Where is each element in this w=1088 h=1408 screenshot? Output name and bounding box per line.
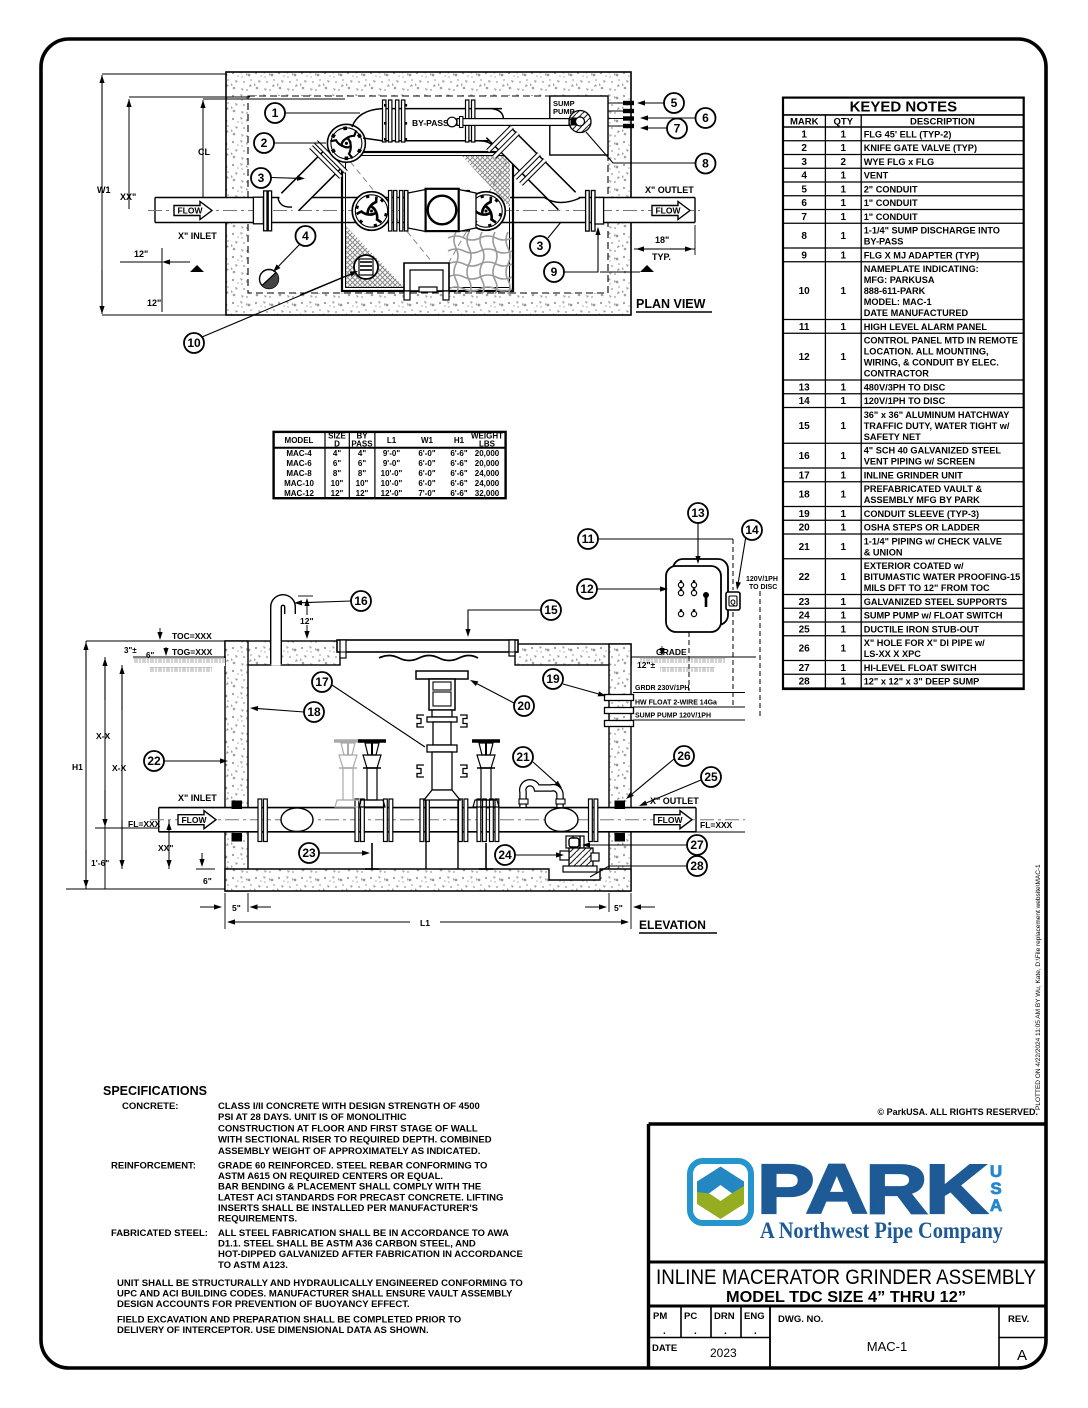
svg-text:20: 20 bbox=[799, 523, 811, 534]
svg-text:17: 17 bbox=[315, 675, 329, 689]
svg-text:10: 10 bbox=[799, 286, 811, 297]
svg-text:DELIVERY OF INTERCEPTOR. USE: DELIVERY OF INTERCEPTOR. USE DIMENSIONAL… bbox=[117, 1325, 429, 1336]
svg-text:8: 8 bbox=[801, 231, 807, 242]
svg-text:18: 18 bbox=[799, 490, 811, 501]
svg-text:X" INLET: X" INLET bbox=[178, 231, 217, 241]
svg-text:D1.1. STEEL SHALL BE ASTM A36: D1.1. STEEL SHALL BE ASTM A36 CARBON STE… bbox=[218, 1239, 476, 1250]
svg-text:27: 27 bbox=[690, 838, 704, 852]
svg-text:16: 16 bbox=[354, 594, 368, 608]
svg-text:MODEL: MODEL bbox=[285, 436, 314, 445]
svg-text:TOC=XXX: TOC=XXX bbox=[172, 631, 212, 641]
svg-text:1: 1 bbox=[841, 509, 847, 520]
svg-text:DWG. NO.: DWG. NO. bbox=[778, 1314, 823, 1325]
svg-text:X" OUTLET: X" OUTLET bbox=[650, 796, 699, 806]
svg-text:ENG: ENG bbox=[744, 1311, 765, 1322]
svg-text:23: 23 bbox=[799, 597, 811, 608]
svg-text:PARK: PARK bbox=[757, 1150, 987, 1228]
svg-text:DUCTILE IRON STUB-OUT: DUCTILE IRON STUB-OUT bbox=[864, 624, 980, 634]
svg-text:MAC-12: MAC-12 bbox=[284, 489, 314, 498]
svg-text:FIELD EXCAVATION AND PREPARATI: FIELD EXCAVATION AND PREPARATION SHALL B… bbox=[117, 1315, 461, 1326]
svg-text:12": 12" bbox=[356, 489, 369, 498]
svg-text:11: 11 bbox=[799, 322, 810, 333]
svg-text:22: 22 bbox=[147, 754, 161, 768]
svg-text:120V/1PH: 120V/1PH bbox=[746, 576, 778, 583]
svg-text:XX": XX" bbox=[120, 192, 136, 202]
svg-text:TO DISC: TO DISC bbox=[749, 584, 777, 591]
svg-text:PLAN VIEW: PLAN VIEW bbox=[636, 297, 706, 311]
svg-text:1'-6": 1'-6" bbox=[91, 858, 109, 868]
svg-text:SPECIFICATIONS: SPECIFICATIONS bbox=[103, 1084, 207, 1098]
svg-text:EXTERIOR COATED w/: EXTERIOR COATED w/ bbox=[864, 561, 964, 571]
svg-text:X" OUTLET: X" OUTLET bbox=[645, 185, 694, 195]
svg-text:L1: L1 bbox=[387, 436, 397, 445]
svg-text:1-1/4" PIPING w/ CHECK VALVE: 1-1/4" PIPING w/ CHECK VALVE bbox=[864, 536, 1002, 546]
svg-text:& UNION: & UNION bbox=[864, 547, 903, 557]
svg-text:REV.: REV. bbox=[1008, 1314, 1029, 1325]
svg-text:GRDR 230V/1PH: GRDR 230V/1PH bbox=[635, 685, 689, 692]
svg-text:1: 1 bbox=[841, 523, 847, 534]
svg-text:DESCRIPTION: DESCRIPTION bbox=[910, 117, 975, 128]
svg-text:14: 14 bbox=[745, 523, 759, 537]
svg-text:10": 10" bbox=[331, 479, 344, 488]
svg-text:KEYED NOTES: KEYED NOTES bbox=[850, 99, 958, 116]
svg-text:D: D bbox=[334, 440, 340, 449]
svg-text:WIRING, & CONDUIT BY ELEC.: WIRING, & CONDUIT BY ELEC. bbox=[864, 358, 999, 368]
svg-text:GRADE 60 REINFORCED. STEEL RE: GRADE 60 REINFORCED. STEEL REBAR CONFORM… bbox=[218, 1161, 487, 1172]
svg-text:1: 1 bbox=[841, 542, 847, 553]
svg-text:24,000: 24,000 bbox=[475, 469, 500, 478]
svg-text:UPC AND ACI BUILDING CODES. M: UPC AND ACI BUILDING CODES. MANUFACTURER… bbox=[117, 1289, 513, 1300]
svg-text:6'-6": 6'-6" bbox=[450, 469, 467, 478]
svg-text:.: . bbox=[663, 1326, 666, 1337]
svg-text:5": 5" bbox=[614, 903, 623, 913]
svg-text:6": 6" bbox=[333, 459, 341, 468]
svg-text:ASSEMBLY WEIGHT OF APPROXIMATE: ASSEMBLY WEIGHT OF APPROXIMATELY AS INDI… bbox=[218, 1146, 480, 1157]
svg-text:25: 25 bbox=[799, 624, 811, 635]
svg-text:2: 2 bbox=[801, 143, 807, 154]
svg-text:.: . bbox=[724, 1326, 727, 1337]
svg-text:7'-0": 7'-0" bbox=[418, 489, 435, 498]
svg-text:14: 14 bbox=[799, 396, 811, 407]
svg-text:1: 1 bbox=[272, 106, 279, 120]
svg-text:MAC-1: MAC-1 bbox=[867, 1339, 907, 1354]
svg-text:5": 5" bbox=[232, 903, 241, 913]
svg-text:X-X: X-X bbox=[112, 763, 127, 773]
svg-text:MARK: MARK bbox=[790, 117, 819, 128]
svg-text:FL=XXX: FL=XXX bbox=[700, 820, 733, 830]
svg-text:6'-0": 6'-0" bbox=[418, 479, 435, 488]
svg-text:17: 17 bbox=[799, 470, 811, 481]
svg-text:1: 1 bbox=[841, 212, 847, 223]
svg-text:888-611-PARK: 888-611-PARK bbox=[864, 286, 926, 296]
svg-text:SUMP PUMP w/ FLOAT SWITCH: SUMP PUMP w/ FLOAT SWITCH bbox=[864, 611, 1003, 621]
svg-text:WITH SECTIONAL RISER TO REQUIR: WITH SECTIONAL RISER TO REQUIRED DEPTH. … bbox=[218, 1135, 492, 1146]
svg-text:MFG: PARKUSA: MFG: PARKUSA bbox=[864, 275, 935, 285]
svg-text:CONTRACTOR: CONTRACTOR bbox=[864, 369, 930, 379]
svg-text:FLOW: FLOW bbox=[657, 815, 683, 825]
svg-text:11: 11 bbox=[582, 532, 595, 546]
svg-text:4": 4" bbox=[358, 449, 366, 458]
svg-text:1: 1 bbox=[841, 597, 847, 608]
svg-text:X" HOLE FOR X" DI PIPE w/: X" HOLE FOR X" DI PIPE w/ bbox=[864, 638, 985, 648]
svg-text:12: 12 bbox=[580, 582, 594, 596]
svg-text:6: 6 bbox=[702, 111, 709, 125]
svg-text:1: 1 bbox=[841, 198, 847, 209]
svg-text:1: 1 bbox=[801, 129, 807, 140]
svg-text:W1: W1 bbox=[97, 185, 111, 195]
svg-text:CONSTRUCTION AT FLOOR AND FIRS: CONSTRUCTION AT FLOOR AND FIRST STAGE OF… bbox=[218, 1123, 478, 1134]
svg-text:25: 25 bbox=[704, 770, 718, 784]
svg-text:L1: L1 bbox=[420, 918, 430, 928]
svg-text:CONDUIT SLEEVE (TYP-3): CONDUIT SLEEVE (TYP-3) bbox=[864, 509, 979, 519]
svg-text:8": 8" bbox=[358, 469, 366, 478]
svg-text:3"±: 3"± bbox=[124, 646, 137, 655]
svg-text:LOCATION. ALL MOUNTING,: LOCATION. ALL MOUNTING, bbox=[864, 347, 989, 357]
svg-text:PM: PM bbox=[653, 1311, 667, 1322]
svg-text:REQUIREMENTS.: REQUIREMENTS. bbox=[218, 1214, 297, 1225]
svg-text:6'-0": 6'-0" bbox=[418, 459, 435, 468]
svg-text:6'-6": 6'-6" bbox=[450, 449, 467, 458]
svg-text:24: 24 bbox=[498, 848, 512, 862]
svg-text:FLOW: FLOW bbox=[181, 815, 207, 825]
svg-text:MAC-8: MAC-8 bbox=[286, 469, 312, 478]
svg-text:HOT-DIPPED GALVANIZED AFTER FA: HOT-DIPPED GALVANIZED AFTER FABRICATION … bbox=[218, 1249, 523, 1260]
svg-text:ALL STEEL FABRICATION SHALL BE: ALL STEEL FABRICATION SHALL BE IN ACCORD… bbox=[218, 1228, 509, 1239]
svg-text:9'-0": 9'-0" bbox=[383, 459, 400, 468]
svg-text:DATE: DATE bbox=[652, 1343, 677, 1354]
svg-text:19: 19 bbox=[546, 672, 560, 686]
svg-text:W1: W1 bbox=[421, 436, 434, 445]
svg-text:BAR BENDING & PLACEMENT SHALL: BAR BENDING & PLACEMENT SHALL COMPLY WIT… bbox=[218, 1182, 481, 1193]
svg-text:9: 9 bbox=[801, 250, 807, 261]
svg-text:XX": XX" bbox=[158, 843, 173, 853]
svg-text:LBS: LBS bbox=[479, 440, 496, 449]
svg-text:1: 1 bbox=[841, 184, 847, 195]
svg-text:16: 16 bbox=[799, 451, 811, 462]
svg-text:10: 10 bbox=[187, 336, 201, 350]
svg-text:MAC-6: MAC-6 bbox=[286, 459, 312, 468]
svg-text:DRN: DRN bbox=[714, 1311, 735, 1322]
svg-text:HIGH LEVEL ALARM PANEL: HIGH LEVEL ALARM PANEL bbox=[864, 322, 988, 332]
svg-text:24,000: 24,000 bbox=[475, 479, 500, 488]
svg-text:VENT PIPING w/ SCREEN: VENT PIPING w/ SCREEN bbox=[864, 457, 976, 467]
svg-text:10'-0": 10'-0" bbox=[381, 479, 403, 488]
svg-text:9: 9 bbox=[551, 265, 558, 279]
svg-text:INLINE GRINDER UNIT: INLINE GRINDER UNIT bbox=[864, 470, 963, 480]
svg-text:2023: 2023 bbox=[710, 1346, 737, 1360]
svg-text:13: 13 bbox=[691, 506, 705, 520]
svg-text:LATEST ACI STANDARDS FOR PRECA: LATEST ACI STANDARDS FOR PRECAST CONCRET… bbox=[218, 1192, 503, 1203]
svg-text:1: 1 bbox=[841, 143, 847, 154]
svg-text:H1: H1 bbox=[72, 762, 83, 772]
svg-text:36" x 36" ALUMINUM HATCHWAY: 36" x 36" ALUMINUM HATCHWAY bbox=[864, 410, 1010, 420]
svg-text:8: 8 bbox=[702, 157, 709, 171]
svg-text:1: 1 bbox=[841, 451, 847, 462]
svg-text:21: 21 bbox=[516, 750, 530, 764]
svg-text:ASTM A615 ON REQUIRED CENTERS: ASTM A615 ON REQUIRED CENTERS OR EQUAL. bbox=[218, 1171, 443, 1182]
svg-text:32,000: 32,000 bbox=[475, 489, 500, 498]
svg-text:A Northwest Pipe Company: A Northwest Pipe Company bbox=[760, 1218, 1003, 1243]
svg-text:CLASS I/II CONCRETE WITH DESIG: CLASS I/II CONCRETE WITH DESIGN STRENGTH… bbox=[218, 1101, 480, 1112]
svg-text:1" CONDUIT: 1" CONDUIT bbox=[864, 212, 918, 222]
svg-text:FLOW: FLOW bbox=[177, 206, 203, 216]
svg-text:1: 1 bbox=[841, 352, 847, 363]
svg-text:FLG X MJ ADAPTER (TYP): FLG X MJ ADAPTER (TYP) bbox=[864, 250, 980, 260]
svg-text:HW FLOAT 2-WIRE 14Ga: HW FLOAT 2-WIRE 14Ga bbox=[635, 700, 717, 707]
svg-text:NAMEPLATE INDICATING:: NAMEPLATE INDICATING: bbox=[864, 264, 979, 274]
svg-text:24: 24 bbox=[799, 611, 811, 622]
svg-text:2: 2 bbox=[841, 157, 847, 168]
svg-text:20: 20 bbox=[517, 699, 531, 713]
svg-text:6'-0": 6'-0" bbox=[418, 449, 435, 458]
svg-text:WYE FLG x FLG: WYE FLG x FLG bbox=[864, 157, 934, 167]
svg-text:ELEVATION: ELEVATION bbox=[639, 918, 706, 932]
svg-text:1: 1 bbox=[841, 624, 847, 635]
svg-text:1: 1 bbox=[841, 490, 847, 501]
svg-text:VENT: VENT bbox=[864, 171, 889, 181]
svg-text:TO ASTM A123.: TO ASTM A123. bbox=[218, 1260, 288, 1271]
svg-text:27: 27 bbox=[799, 663, 811, 674]
svg-text:26: 26 bbox=[799, 644, 811, 655]
svg-text:6'-6": 6'-6" bbox=[450, 459, 467, 468]
svg-text:12": 12" bbox=[300, 616, 314, 626]
svg-text:FLG 45' ELL (TYP-2): FLG 45' ELL (TYP-2) bbox=[864, 129, 952, 139]
svg-text:DATE MANUFACTURED: DATE MANUFACTURED bbox=[864, 308, 969, 318]
svg-text:6": 6" bbox=[203, 876, 212, 886]
svg-text:X" INLET: X" INLET bbox=[178, 793, 217, 803]
svg-text:12": 12" bbox=[147, 298, 161, 308]
svg-text:1: 1 bbox=[841, 421, 847, 432]
svg-text:12" x 12" x 3" DEEP SUMP: 12" x 12" x 3" DEEP SUMP bbox=[864, 677, 980, 687]
svg-text:PASS: PASS bbox=[351, 440, 373, 449]
svg-text:A: A bbox=[990, 1196, 1002, 1215]
svg-text:1: 1 bbox=[841, 171, 847, 182]
svg-text:1: 1 bbox=[841, 677, 847, 688]
svg-text:BY-PASS: BY-PASS bbox=[412, 118, 449, 128]
svg-text:18: 18 bbox=[307, 705, 321, 719]
svg-text:19: 19 bbox=[799, 509, 811, 520]
svg-text:21: 21 bbox=[799, 542, 811, 553]
svg-text:12: 12 bbox=[799, 352, 811, 363]
svg-text:SAFETY NET: SAFETY NET bbox=[864, 432, 921, 442]
svg-text:INSERTS SHALL BE INSTALLED PER: INSERTS SHALL BE INSTALLED PER MANUFACTU… bbox=[218, 1203, 478, 1214]
svg-text:MAC-10: MAC-10 bbox=[284, 479, 314, 488]
svg-text:LS-XX X XPC: LS-XX X XPC bbox=[864, 649, 922, 659]
svg-text:7: 7 bbox=[674, 122, 681, 136]
svg-text:2: 2 bbox=[261, 136, 268, 150]
svg-text:10'-0": 10'-0" bbox=[381, 469, 403, 478]
svg-text:PREFABRICATED VAULT &: PREFABRICATED VAULT & bbox=[864, 484, 983, 494]
svg-text:CL: CL bbox=[198, 147, 210, 157]
svg-text:12"±: 12"± bbox=[637, 660, 655, 670]
svg-text:TRAFFIC DUTY, WATER TIGHT w/: TRAFFIC DUTY, WATER TIGHT w/ bbox=[864, 421, 1010, 431]
svg-text:PSI AT 28 DAYS. UNIT IS OF M: PSI AT 28 DAYS. UNIT IS OF MONOLITHIC bbox=[218, 1112, 407, 1123]
svg-text:1: 1 bbox=[841, 663, 847, 674]
svg-text:10": 10" bbox=[356, 479, 369, 488]
svg-text:3: 3 bbox=[801, 157, 807, 168]
svg-text:HI-LEVEL FLOAT SWITCH: HI-LEVEL FLOAT SWITCH bbox=[864, 663, 977, 673]
svg-text:6'-0": 6'-0" bbox=[418, 469, 435, 478]
svg-text:BITUMASTIC WATER PROOFING-15: BITUMASTIC WATER PROOFING-15 bbox=[864, 572, 1021, 582]
svg-text:12": 12" bbox=[331, 489, 344, 498]
svg-text:20,000: 20,000 bbox=[475, 459, 500, 468]
svg-text:PC: PC bbox=[684, 1311, 697, 1322]
svg-text:3: 3 bbox=[258, 171, 265, 185]
svg-text:UNIT SHALL BE STRUCTURALLY AND: UNIT SHALL BE STRUCTURALLY AND HYDRAULIC… bbox=[117, 1278, 523, 1289]
svg-text:GALVANIZED STEEL SUPPORTS: GALVANIZED STEEL SUPPORTS bbox=[864, 597, 1007, 607]
svg-text:1: 1 bbox=[841, 250, 847, 261]
svg-text:TOG=XXX: TOG=XXX bbox=[172, 647, 213, 657]
svg-text:MODEL: MAC-1: MODEL: MAC-1 bbox=[864, 297, 932, 307]
svg-text:15: 15 bbox=[799, 421, 811, 432]
svg-text:Q: Q bbox=[730, 600, 736, 607]
svg-text:FLOW: FLOW bbox=[655, 206, 681, 216]
svg-text:.: . bbox=[754, 1326, 757, 1337]
svg-text:TYP.: TYP. bbox=[652, 252, 671, 262]
svg-text:6": 6" bbox=[358, 459, 366, 468]
svg-text:KNIFE GATE VALVE (TYP): KNIFE GATE VALVE (TYP) bbox=[864, 143, 977, 153]
svg-text:4": 4" bbox=[333, 449, 341, 458]
svg-text:X-X: X-X bbox=[96, 731, 111, 741]
svg-text:26: 26 bbox=[677, 749, 691, 763]
svg-text:6: 6 bbox=[801, 198, 807, 209]
svg-text:1: 1 bbox=[841, 129, 847, 140]
svg-text:120V/1PH TO DISC: 120V/1PH TO DISC bbox=[864, 396, 946, 406]
svg-text:28: 28 bbox=[799, 677, 811, 688]
svg-text:FABRICATED STEEL:: FABRICATED STEEL: bbox=[111, 1228, 208, 1239]
svg-text:1: 1 bbox=[841, 572, 847, 583]
svg-text:1-1/4" SUMP DISCHARGE INTO: 1-1/4" SUMP DISCHARGE INTO bbox=[864, 226, 1000, 236]
svg-text:2" CONDUIT: 2" CONDUIT bbox=[864, 184, 918, 194]
svg-text:1: 1 bbox=[841, 322, 847, 333]
svg-text:PLOTTED ON 4/22/2024 11:05 AM: PLOTTED ON 4/22/2024 11:05 AM BY Wu, Kat… bbox=[1035, 864, 1042, 1110]
svg-text:3: 3 bbox=[537, 239, 544, 253]
svg-text:4: 4 bbox=[801, 171, 807, 182]
svg-text:DESIGN ACCOUNTS FOR PREVENTION: DESIGN ACCOUNTS FOR PREVENTION OF BUOYAN… bbox=[117, 1299, 410, 1310]
svg-text:MILS DFT TO 12" FROM TOC: MILS DFT TO 12" FROM TOC bbox=[864, 583, 990, 593]
svg-text:18": 18" bbox=[655, 235, 669, 245]
svg-text:12": 12" bbox=[134, 249, 148, 259]
svg-text:QTY: QTY bbox=[834, 117, 854, 128]
svg-text:6'-6": 6'-6" bbox=[450, 489, 467, 498]
svg-text:ASSEMBLY MFG BY PARK: ASSEMBLY MFG BY PARK bbox=[864, 495, 980, 505]
svg-text:1: 1 bbox=[841, 286, 847, 297]
svg-text:SUMP PUMP 120V/1PH: SUMP PUMP 120V/1PH bbox=[635, 713, 711, 720]
svg-text:20,000: 20,000 bbox=[475, 449, 500, 458]
svg-text:CONTROL PANEL MTD IN REMOTE: CONTROL PANEL MTD IN REMOTE bbox=[864, 336, 1018, 346]
svg-text:1: 1 bbox=[841, 611, 847, 622]
svg-text:1: 1 bbox=[841, 231, 847, 242]
svg-text:6'-6": 6'-6" bbox=[450, 479, 467, 488]
svg-text:23: 23 bbox=[302, 846, 316, 860]
svg-text:5: 5 bbox=[671, 96, 678, 110]
svg-text:1: 1 bbox=[841, 644, 847, 655]
svg-text:A: A bbox=[1017, 1347, 1027, 1364]
svg-text:OSHA STEPS OR LADDER: OSHA STEPS OR LADDER bbox=[864, 523, 980, 533]
svg-text:MODEL TDC SIZE 4” THRU 12”: MODEL TDC SIZE 4” THRU 12” bbox=[726, 1289, 966, 1306]
svg-text:© ParkUSA. ALL RIGHTS RESERVED: © ParkUSA. ALL RIGHTS RESERVED. bbox=[877, 1107, 1038, 1117]
svg-text:15: 15 bbox=[544, 603, 558, 617]
svg-text:1: 1 bbox=[841, 470, 847, 481]
svg-text:13: 13 bbox=[799, 382, 811, 393]
svg-text:480V/3PH TO DISC: 480V/3PH TO DISC bbox=[864, 382, 946, 392]
svg-text:5: 5 bbox=[801, 184, 807, 195]
svg-text:H1: H1 bbox=[454, 436, 465, 445]
svg-text:.: . bbox=[694, 1326, 697, 1337]
svg-text:1: 1 bbox=[841, 396, 847, 407]
svg-text:CONCRETE:: CONCRETE: bbox=[122, 1101, 178, 1112]
svg-text:4: 4 bbox=[302, 229, 309, 243]
svg-text:7: 7 bbox=[801, 212, 807, 223]
svg-text:BY-PASS: BY-PASS bbox=[864, 237, 904, 247]
svg-text:28: 28 bbox=[690, 859, 704, 873]
svg-text:22: 22 bbox=[799, 572, 811, 583]
svg-text:MAC-4: MAC-4 bbox=[286, 449, 312, 458]
svg-text:4" SCH 40 GALVANIZED STEEL: 4" SCH 40 GALVANIZED STEEL bbox=[864, 446, 1002, 456]
svg-text:1" CONDUIT: 1" CONDUIT bbox=[864, 198, 918, 208]
svg-text:REINFORCEMENT:: REINFORCEMENT: bbox=[111, 1161, 196, 1172]
svg-text:9'-0": 9'-0" bbox=[383, 449, 400, 458]
svg-text:INLINE MACERATOR GRINDER ASSEM: INLINE MACERATOR GRINDER ASSEMBLY bbox=[656, 1265, 1036, 1289]
svg-text:8": 8" bbox=[333, 469, 341, 478]
svg-text:1: 1 bbox=[841, 382, 847, 393]
svg-text:12'-0": 12'-0" bbox=[381, 489, 403, 498]
